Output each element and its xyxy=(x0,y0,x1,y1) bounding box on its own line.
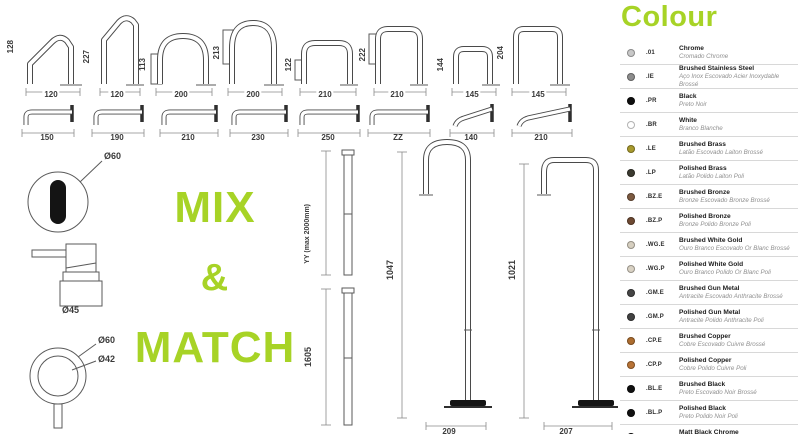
dim-length: 230 xyxy=(249,134,266,142)
basin-spout-diagram: 144 145 xyxy=(444,8,500,100)
colour-name: Brushed Stainless Steel xyxy=(679,64,798,74)
colour-title: Colour xyxy=(621,2,717,34)
colour-translation: Ouro Branco Polido Or Blanc Poli xyxy=(679,269,771,277)
wall-spout-diagram: 230 xyxy=(222,102,294,142)
spout-drawing xyxy=(14,8,88,100)
colour-name: Polished White Gold xyxy=(679,260,771,270)
swatch-dot xyxy=(627,145,635,153)
dim-height: 122 xyxy=(285,56,293,73)
dim-height: 128 xyxy=(7,38,15,55)
riser-tube-diagram: 1605 xyxy=(302,284,368,430)
colour-translation: Ouro Branco Escovado Or Blanc Brossé xyxy=(679,245,790,253)
wall-spout-diagram: 250 xyxy=(290,102,366,142)
swatch-dot xyxy=(627,409,635,417)
basin-spout-diagram: 122 210 xyxy=(292,8,358,100)
colour-legend: .01 ChromeCromado Chrome .IE Brushed Sta… xyxy=(620,41,798,434)
dim-height: 144 xyxy=(437,56,445,73)
colour-code: .BL.P xyxy=(646,410,679,416)
spout-drawing xyxy=(504,8,572,100)
dim-height: 204 xyxy=(497,44,505,61)
swatch-dot xyxy=(627,265,635,273)
dim-height: 1605 xyxy=(304,345,313,369)
basin-spout-diagram: 204 145 xyxy=(504,8,572,100)
colour-row: .BL.E Brushed BlackPreto Escovado Noir B… xyxy=(620,377,798,401)
colour-row: .CP.E Brushed CopperCobre Escovado Cuivr… xyxy=(620,329,798,353)
swatch-dot xyxy=(627,289,635,297)
floor-spout-diagram: 1021 207 xyxy=(514,130,618,434)
spout-drawing xyxy=(292,8,358,100)
colour-row: .BZ.P Polished BronzeBronze Polido Bronz… xyxy=(620,209,798,233)
dim-width: 207 xyxy=(557,428,574,434)
dim-height: 113 xyxy=(139,56,147,73)
colour-name: White xyxy=(679,116,723,126)
swatch-dot xyxy=(627,169,635,177)
colour-code: .01 xyxy=(646,50,679,56)
dim-height: 1021 xyxy=(508,258,517,282)
colour-name: Polished Copper xyxy=(679,356,746,366)
colour-translation: Preto Noir xyxy=(679,101,707,109)
colour-row: .PR BlackPreto Noir xyxy=(620,89,798,113)
colour-code: .IE xyxy=(646,74,679,80)
swatch-dot xyxy=(627,337,635,345)
handle-drawing xyxy=(16,332,142,432)
colour-translation: Branco Blanche xyxy=(679,125,723,133)
swatch-dot xyxy=(627,73,635,81)
dim-height: 213 xyxy=(213,44,221,61)
colour-row: .GM.P Polished Gun MetalAntracite Polido… xyxy=(620,305,798,329)
colour-code: .CP.P xyxy=(646,362,679,368)
colour-translation: Cromado Chrome xyxy=(679,53,728,61)
colour-row: .WG.E Brushed White GoldOuro Branco Esco… xyxy=(620,233,798,257)
colour-code: .WG.E xyxy=(646,242,679,248)
colour-translation: Latão Polido Laiton Poli xyxy=(679,173,744,181)
handle-drawing xyxy=(26,238,142,320)
colour-row: .BZ.E Brushed BronzeBronze Escovado Bron… xyxy=(620,185,798,209)
colour-translation: Preto Escovado Noir Brossé xyxy=(679,389,757,397)
dim-width: 210 xyxy=(388,91,405,99)
spout-drawing xyxy=(514,130,618,434)
colour-name: Polished Brass xyxy=(679,164,744,174)
dim-diameter: Ø60 xyxy=(98,336,115,345)
dim-diameter: Ø60 xyxy=(104,152,121,161)
colour-row: .LP Polished BrassLatão Polido Laiton Po… xyxy=(620,161,798,185)
colour-name: Chrome xyxy=(679,44,728,54)
colour-code: .BZ.P xyxy=(646,218,679,224)
spout-drawing xyxy=(366,8,428,100)
colour-translation: Aço Inox Escovado Acier Inoxydable Bross… xyxy=(679,73,798,89)
colour-code: .GM.E xyxy=(646,290,679,296)
colour-translation: Antracite Polido Anthracite Poli xyxy=(679,317,764,325)
colour-name: Polished Bronze xyxy=(679,212,751,222)
dim-width: 209 xyxy=(440,428,457,434)
colour-name: Brushed Copper xyxy=(679,332,765,342)
riser-drawing xyxy=(302,146,368,280)
colour-code: .WG.P xyxy=(646,266,679,272)
colour-row: .BL.CM Matt Black ChromePreto Cromado Ma… xyxy=(620,425,798,434)
colour-row: .BL.P Polished BlackPreto Polido Noir Po… xyxy=(620,401,798,425)
spout-drawing xyxy=(220,8,286,100)
basin-spout-diagram: 227 120 xyxy=(90,8,144,100)
colour-translation: Antracite Escovado Anthracite Brossé xyxy=(679,293,783,301)
colour-name: Black xyxy=(679,92,707,102)
dim-width: 120 xyxy=(108,91,125,99)
colour-row: .01 ChromeCromado Chrome xyxy=(620,41,798,65)
dim-width: 200 xyxy=(172,91,189,99)
colour-row: .CP.P Polished CopperCobre Polido Cuivre… xyxy=(620,353,798,377)
dim-width: 210 xyxy=(316,91,333,99)
spout-drawing xyxy=(444,8,500,100)
basin-spout-diagram: 128 120 xyxy=(14,8,88,100)
dim-height: 222 xyxy=(359,46,367,63)
colour-code: .LE xyxy=(646,146,679,152)
match-text: MATCH xyxy=(135,326,296,370)
basin-spout-diagram: 222 210 xyxy=(366,8,428,100)
swatch-dot xyxy=(627,385,635,393)
spout-drawing xyxy=(90,8,144,100)
swatch-dot xyxy=(627,313,635,321)
dim-height: 227 xyxy=(83,48,91,65)
colour-row: .BR WhiteBranco Blanche xyxy=(620,113,798,137)
handle-side-view-diagram: Ø45 xyxy=(26,238,142,320)
dim-height: 1047 xyxy=(386,258,395,282)
colour-translation: Preto Polido Noir Poli xyxy=(679,413,738,421)
colour-code: .BR xyxy=(646,122,679,128)
dim-width: 145 xyxy=(463,91,480,99)
dim-length: 210 xyxy=(179,134,196,142)
colour-name: Brushed Gun Metal xyxy=(679,284,783,294)
colour-name: Polished Black xyxy=(679,404,738,414)
wall-spout-diagram: 150 xyxy=(14,102,80,142)
colour-translation: Cobre Escovado Cuivre Brossé xyxy=(679,341,765,349)
spout-drawing xyxy=(146,8,216,100)
colour-name: Brushed Brass xyxy=(679,140,763,150)
handle-ring-view-diagram: Ø60 Ø42 xyxy=(16,332,142,432)
colour-code: .CP.E xyxy=(646,338,679,344)
colour-name: Brushed White Gold xyxy=(679,236,790,246)
colour-name: Matt Black Chrome xyxy=(679,428,785,434)
catalog-page: 128 120 227 120 113 200 213 200 xyxy=(0,0,800,434)
floor-spout-diagram: 1047 209 xyxy=(390,130,508,434)
swatch-dot xyxy=(627,49,635,57)
dim-height: YY (max 2000mm) xyxy=(304,202,311,266)
swatch-dot xyxy=(627,193,635,201)
basin-spout-diagram: 113 200 xyxy=(146,8,216,100)
dim-length: 190 xyxy=(108,134,125,142)
colour-code: .LP xyxy=(646,170,679,176)
dim-width: 200 xyxy=(244,91,261,99)
colour-name: Brushed Bronze xyxy=(679,188,770,198)
handle-drawing xyxy=(18,148,142,244)
colour-code: .BL.E xyxy=(646,386,679,392)
mix-and-match-text: MIX & MATCH xyxy=(134,186,296,370)
colour-row: .LE Brushed BrassLatão Escovado Laiton B… xyxy=(620,137,798,161)
dim-width: 120 xyxy=(42,91,59,99)
colour-name: Polished Gun Metal xyxy=(679,308,764,318)
colour-code: .GM.P xyxy=(646,314,679,320)
swatch-dot xyxy=(627,241,635,249)
ampersand-text: & xyxy=(201,259,229,297)
riser-tube-diagram: YY (max 2000mm) xyxy=(302,146,368,280)
colour-name: Brushed Black xyxy=(679,380,757,390)
dim-diameter: Ø45 xyxy=(62,306,79,315)
wall-spout-diagram: 190 xyxy=(84,102,150,142)
colour-row: .WG.P Polished White GoldOuro Branco Pol… xyxy=(620,257,798,281)
wall-spout-diagram: 210 xyxy=(152,102,224,142)
swatch-dot xyxy=(627,361,635,369)
swatch-dot xyxy=(627,121,635,129)
basin-spout-diagram: 213 200 xyxy=(220,8,286,100)
dim-width: 145 xyxy=(529,91,546,99)
colour-translation: Latão Escovado Laiton Brossé xyxy=(679,149,763,157)
colour-row: .GM.E Brushed Gun MetalAntracite Escovad… xyxy=(620,281,798,305)
swatch-dot xyxy=(627,97,635,105)
swatch-dot xyxy=(627,217,635,225)
handle-top-view-diagram: Ø60 xyxy=(18,148,142,244)
spout-drawing xyxy=(390,130,508,434)
mix-text: MIX xyxy=(174,186,255,230)
dim-length: 150 xyxy=(38,134,55,142)
dim-diameter: Ø42 xyxy=(98,355,115,364)
colour-code: .PR xyxy=(646,98,679,104)
colour-row: .IE Brushed Stainless SteelAço Inox Esco… xyxy=(620,65,798,89)
colour-translation: Bronze Escovado Bronze Brossé xyxy=(679,197,770,205)
colour-translation: Cobre Polido Cuivre Poli xyxy=(679,365,746,373)
colour-translation: Bronze Polido Bronze Poli xyxy=(679,221,751,229)
colour-code: .BZ.E xyxy=(646,194,679,200)
dim-length: 250 xyxy=(319,134,336,142)
